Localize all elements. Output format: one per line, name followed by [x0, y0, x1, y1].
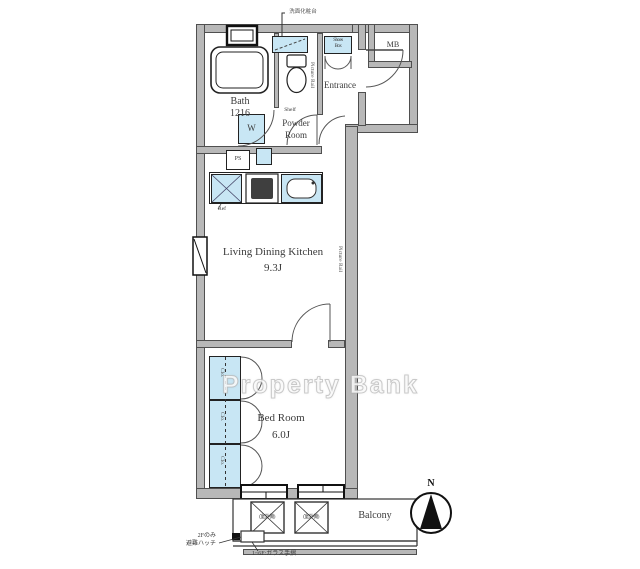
closet-label-2: Clo.: [219, 412, 225, 421]
wall-right-main: [345, 126, 358, 499]
shelf-label: Shelf: [284, 107, 296, 113]
wall-annex-right: [409, 24, 418, 133]
balcony-label: Balcony: [358, 510, 391, 522]
ldk-size-label: 9.3J: [264, 262, 282, 275]
closet-label-3: Clo.: [219, 456, 225, 465]
wall-ldk-bedroom-stub: [328, 340, 345, 348]
entrance-label: Entrance: [324, 80, 356, 90]
powder-room-label-2: Room: [285, 130, 307, 140]
closet-cell-3: [209, 444, 241, 488]
shoes-box-label-2: Box: [335, 44, 342, 50]
washer-label: W: [247, 123, 256, 133]
ac-unit-label-2: (室外機): [303, 515, 319, 521]
wall-bedroom-bottom-left: [196, 488, 244, 499]
wall-bedroom-bottom-right: [342, 488, 358, 499]
ldk-label: Living Dining Kitchen: [223, 246, 323, 259]
wall-top-left: [196, 24, 356, 33]
picture-rail-entrance-label: Picture Rail: [309, 62, 315, 88]
shoes-box-label-1: Shoes: [333, 38, 342, 44]
wall-left-upper: [196, 24, 205, 239]
bedroom-size-label: 6.0J: [272, 429, 290, 442]
picture-rail-ldk-label: Picture Rail: [337, 246, 343, 272]
ac-unit-label-1: (室外機): [259, 515, 275, 521]
vanity-callout-label: 洗面化粧台: [289, 9, 317, 15]
powder-room-label-1: Powder: [282, 118, 310, 128]
wall-mb-bottom: [368, 61, 412, 68]
bedroom-label: Bed Room: [257, 412, 304, 425]
vanity-unit: [272, 36, 308, 53]
bath-size-label: 1216: [230, 108, 250, 120]
wall-left-lower: [196, 274, 205, 499]
north-label: N: [427, 478, 434, 490]
refrigerator-label: Ref: [218, 206, 226, 212]
floor-plan: Bath 1216 Shelf Powder Room W Entrance S…: [0, 0, 640, 569]
refrigerator-space: [211, 174, 242, 203]
wall-entrance-right-upper: [358, 24, 366, 50]
kitchen-sink-unit: [281, 174, 322, 203]
hatch-name-label: 避難ハッチ: [148, 541, 216, 548]
wall-bedroom-bottom-mid: [287, 488, 301, 499]
watermark: Property Bank: [222, 371, 419, 400]
bath-label: Bath: [231, 96, 250, 108]
pipe-space-label: PS: [235, 156, 242, 163]
closet-cell-2: [209, 400, 241, 444]
railing-note-label: 1~6F:ガラス手摺: [252, 551, 296, 558]
plumbing-space: [256, 148, 272, 165]
meter-box-label: MB: [387, 40, 399, 49]
wall-powder-entrance: [317, 33, 323, 115]
wall-ldk-bedroom: [196, 340, 292, 348]
wall-entrance-right-lower: [358, 92, 366, 126]
hatch-floor-label: 2Fのみ: [160, 533, 216, 540]
